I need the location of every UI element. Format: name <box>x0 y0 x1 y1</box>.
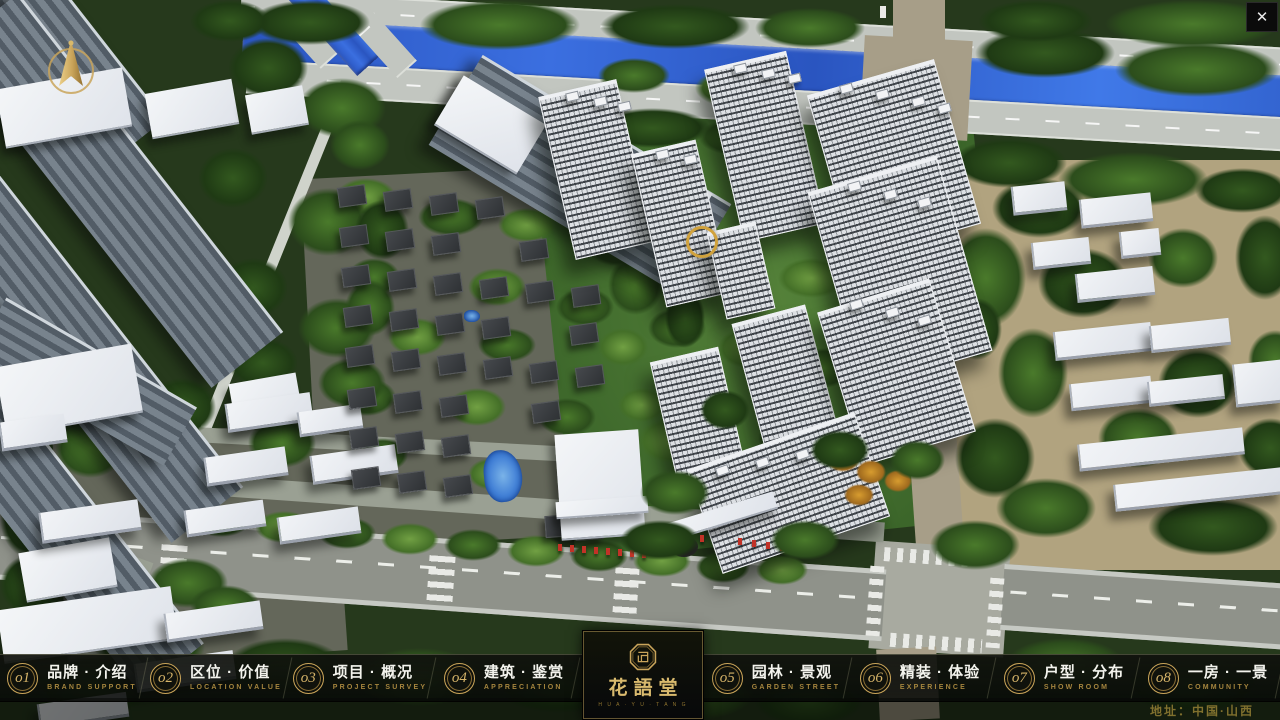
tree-cluster <box>1195 168 1280 213</box>
tree-cluster <box>598 328 648 366</box>
nav-badge-02: o2 <box>150 663 181 694</box>
courtyard-house <box>441 434 472 458</box>
project-logo-title: 花語堂 <box>602 673 683 700</box>
close-icon: ✕ <box>1256 8 1269 26</box>
nav-badge-08: o8 <box>1148 663 1179 694</box>
tree-cluster <box>755 8 865 48</box>
courtyard-house <box>529 360 560 384</box>
courtyard-house <box>339 224 370 248</box>
tree-cluster <box>507 535 565 567</box>
compass-icon <box>42 34 100 105</box>
red-flag <box>594 547 598 554</box>
crosswalk <box>426 555 455 603</box>
courtyard-house <box>349 426 380 450</box>
nav-label-zh: 建筑 · 鉴赏 <box>484 665 564 682</box>
close-button[interactable]: ✕ <box>1246 2 1278 32</box>
courtyard-house <box>475 196 506 220</box>
courtyard-house <box>479 276 510 300</box>
red-flag <box>582 546 586 553</box>
gold-landscape-feature <box>686 226 718 258</box>
nav-label-en: SHOW ROOM <box>1044 684 1109 691</box>
nav-label-en: LOCATION VALUE <box>190 684 282 691</box>
nav-label-zh: 品牌 · 介绍 <box>47 665 127 682</box>
nav-label-en: APPRECIATION <box>484 684 563 691</box>
courtyard-house <box>483 356 514 380</box>
red-flag <box>752 540 756 547</box>
nav-item-project-survey[interactable]: o3 项目 · 概况 PROJECT SURVEY <box>288 655 432 701</box>
tree-cluster <box>1235 215 1280 300</box>
red-flag <box>618 549 622 556</box>
tree-cluster <box>1148 498 1278 556</box>
tree-cluster <box>978 0 1093 42</box>
tree-cluster <box>1115 42 1280 97</box>
white-roof-building <box>145 79 240 140</box>
white-roof-building <box>245 85 309 134</box>
tree-cluster-autumn <box>844 484 874 506</box>
nav-label-en: GARDEN STREET <box>752 684 841 691</box>
courtyard-house <box>341 264 372 288</box>
tree-cluster <box>330 120 390 170</box>
nav-label-en: COMMUNITY <box>1188 684 1251 691</box>
nav-label-zh: 户型 · 分布 <box>1044 665 1124 682</box>
courtyard-house <box>391 348 422 372</box>
nav-label-zh: 项目 · 概况 <box>333 665 413 682</box>
nav-label-en: EXPERIENCE <box>900 684 967 691</box>
nav-badge-07: o7 <box>1004 663 1035 694</box>
tree-cluster <box>930 520 1020 570</box>
courtyard-house <box>389 308 420 332</box>
courtyard-house <box>519 238 550 262</box>
tree-cluster <box>444 529 502 561</box>
red-flag <box>606 548 610 555</box>
nav-item-architecture[interactable]: o4 建筑 · 鉴赏 APPRECIATION <box>432 655 576 701</box>
courtyard-house <box>385 228 416 252</box>
tree-cluster <box>810 430 870 470</box>
courtyard-house <box>435 312 466 336</box>
octagon-seal-icon <box>629 643 657 671</box>
courtyard-house <box>569 322 600 346</box>
courtyard-house <box>397 470 428 494</box>
project-address: 地址：中国·山西 <box>1150 702 1254 719</box>
nav-item-brand-intro[interactable]: o1 品牌 · 介绍 BRAND SUPPORT <box>0 655 144 701</box>
courtyard-house <box>437 352 468 376</box>
courtyard-house <box>393 390 424 414</box>
nav-label-zh: 园林 · 景观 <box>752 665 832 682</box>
nav-badge-03: o3 <box>293 663 324 694</box>
tree-cluster <box>190 0 270 42</box>
nav-item-unit-layouts[interactable]: o7 户型 · 分布 SHOW ROOM <box>992 655 1136 701</box>
low-rise-building <box>1119 228 1162 259</box>
courtyard-house <box>431 232 462 256</box>
nav-badge-05: o5 <box>712 663 743 694</box>
courtyard-house <box>429 192 460 216</box>
red-flag <box>700 535 704 542</box>
nav-item-interior-experience[interactable]: o6 精装 · 体验 EXPERIENCE <box>848 655 992 701</box>
tree-cluster <box>770 520 840 560</box>
tree-cluster <box>420 0 580 50</box>
courtyard-house <box>343 304 374 328</box>
nav-badge-04: o4 <box>444 663 475 694</box>
project-logo-panel[interactable]: 花語堂 H U A · Y U · T A N G <box>582 630 704 720</box>
courtyard-house <box>525 280 556 304</box>
presentation-stage: ✕ o1 品牌 · 介绍 BRAND SUPPORT o2 区位 · 价值 LO… <box>0 0 1280 720</box>
tree-cluster <box>620 520 700 560</box>
courtyard-house <box>531 400 562 424</box>
courtyard-house <box>443 474 474 498</box>
courtyard-house <box>481 316 512 340</box>
courtyard-house <box>433 272 464 296</box>
nav-item-room-views[interactable]: o8 一房 · 一景 COMMUNITY <box>1136 655 1280 701</box>
crosswalk <box>612 567 639 615</box>
nav-label-zh: 区位 · 价值 <box>190 665 270 682</box>
red-flag <box>558 544 562 551</box>
nav-label-en: PROJECT SURVEY <box>333 684 427 691</box>
courtyard-house <box>395 430 426 454</box>
tree-cluster <box>570 540 628 572</box>
courtyard-house <box>337 184 368 208</box>
nav-label-zh: 一房 · 一景 <box>1188 665 1268 682</box>
tree-cluster <box>700 390 750 430</box>
tree-cluster <box>600 4 750 49</box>
nav-label-zh: 精装 · 体验 <box>900 665 980 682</box>
tree-cluster <box>890 440 945 480</box>
nav-label-en: BRAND SUPPORT <box>47 684 137 691</box>
courtyard-house <box>347 386 378 410</box>
nav-item-garden-landscape[interactable]: o5 园林 · 景观 GARDEN STREET <box>704 655 848 701</box>
nav-badge-06: o6 <box>860 663 891 694</box>
red-flag <box>570 545 574 552</box>
road <box>893 0 945 50</box>
courtyard-house <box>439 394 470 418</box>
nav-item-location-value[interactable]: o2 区位 · 价值 LOCATION VALUE <box>144 655 288 701</box>
courtyard-house <box>571 284 602 308</box>
low-rise-building <box>1232 360 1280 408</box>
low-rise-building <box>1011 181 1068 215</box>
courtyard-house <box>575 364 606 388</box>
tree-cluster <box>640 470 710 515</box>
pool <box>464 310 480 322</box>
red-flag <box>738 538 742 545</box>
courtyard-house <box>387 268 418 292</box>
tree-cluster <box>198 148 268 208</box>
nav-badge-01: o1 <box>7 663 38 694</box>
courtyard-house <box>351 466 382 490</box>
tree-cluster <box>381 523 439 555</box>
project-logo-subtitle: H U A · Y U · T A N G <box>598 702 687 708</box>
courtyard-house <box>345 344 376 368</box>
courtyard-house <box>383 188 414 212</box>
